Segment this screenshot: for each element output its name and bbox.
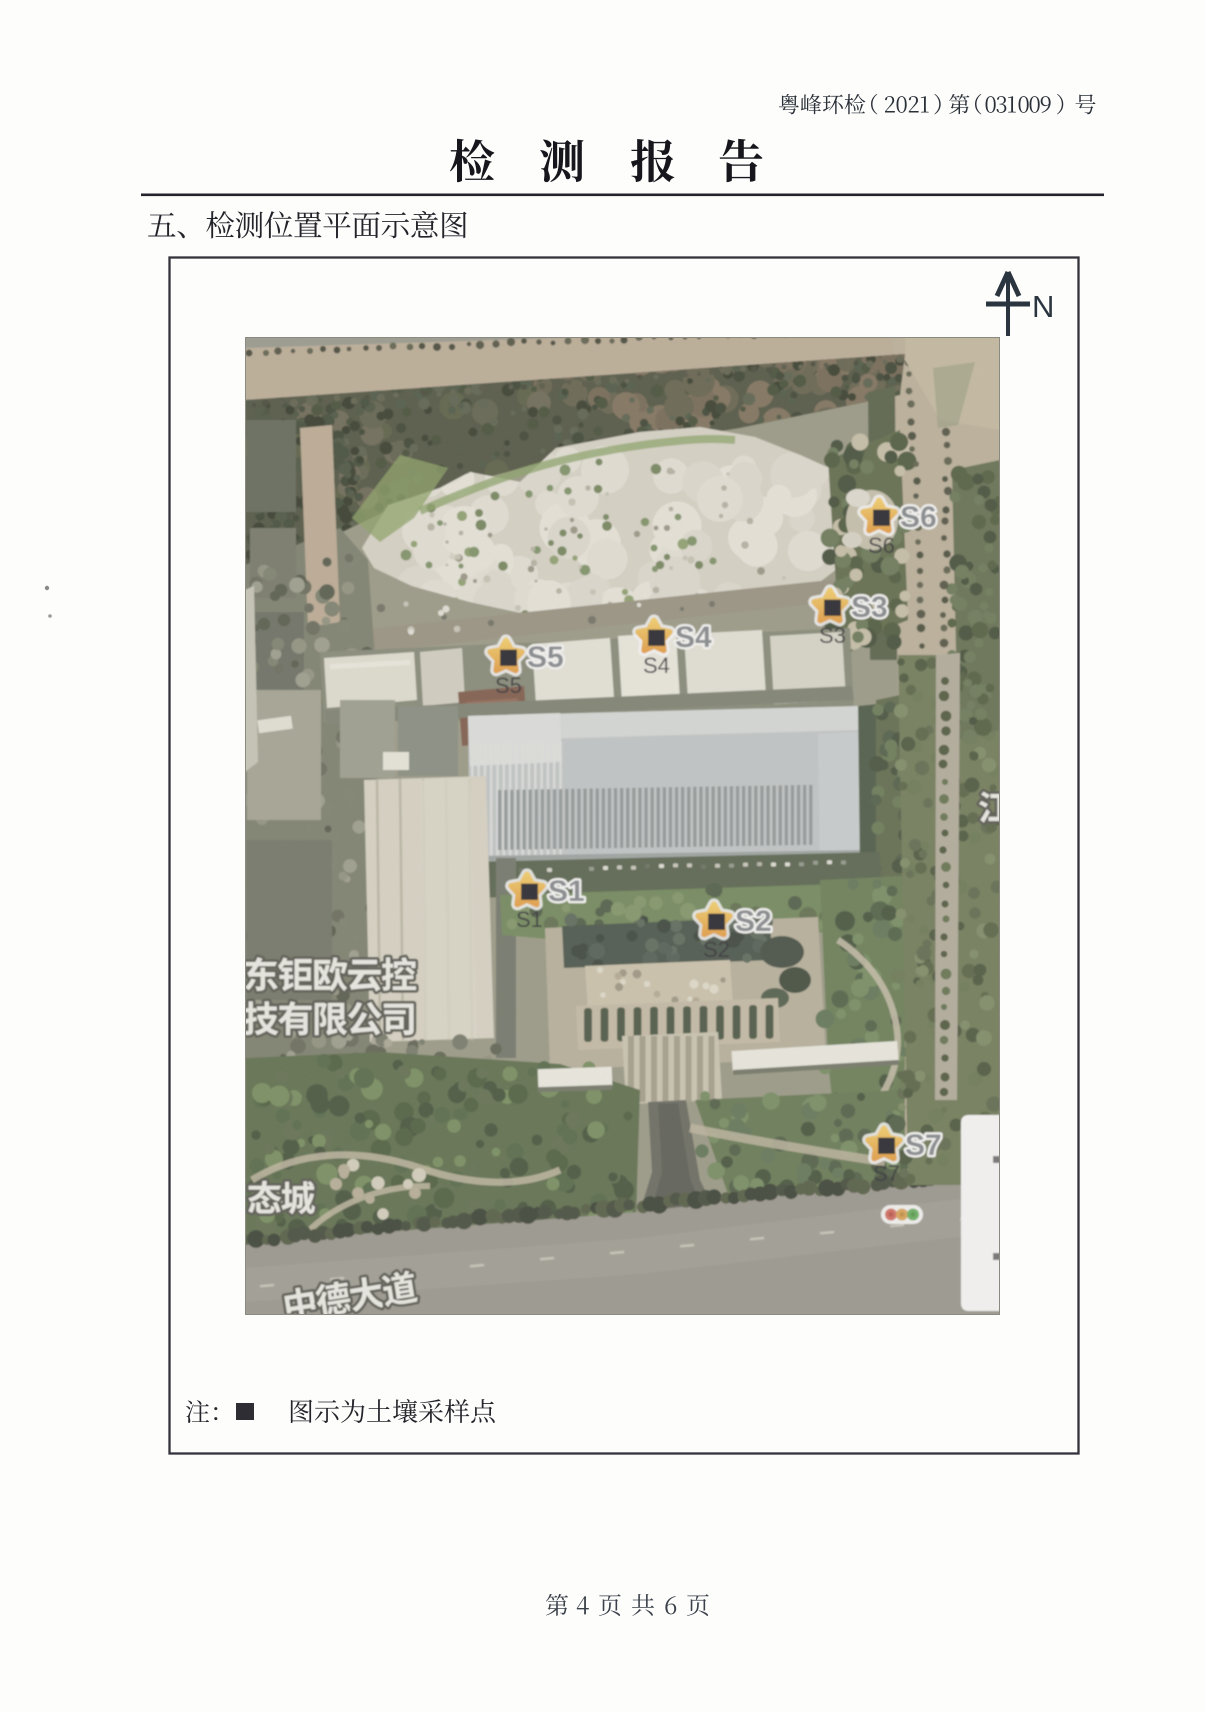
svg-text:N: N bbox=[1032, 289, 1054, 324]
